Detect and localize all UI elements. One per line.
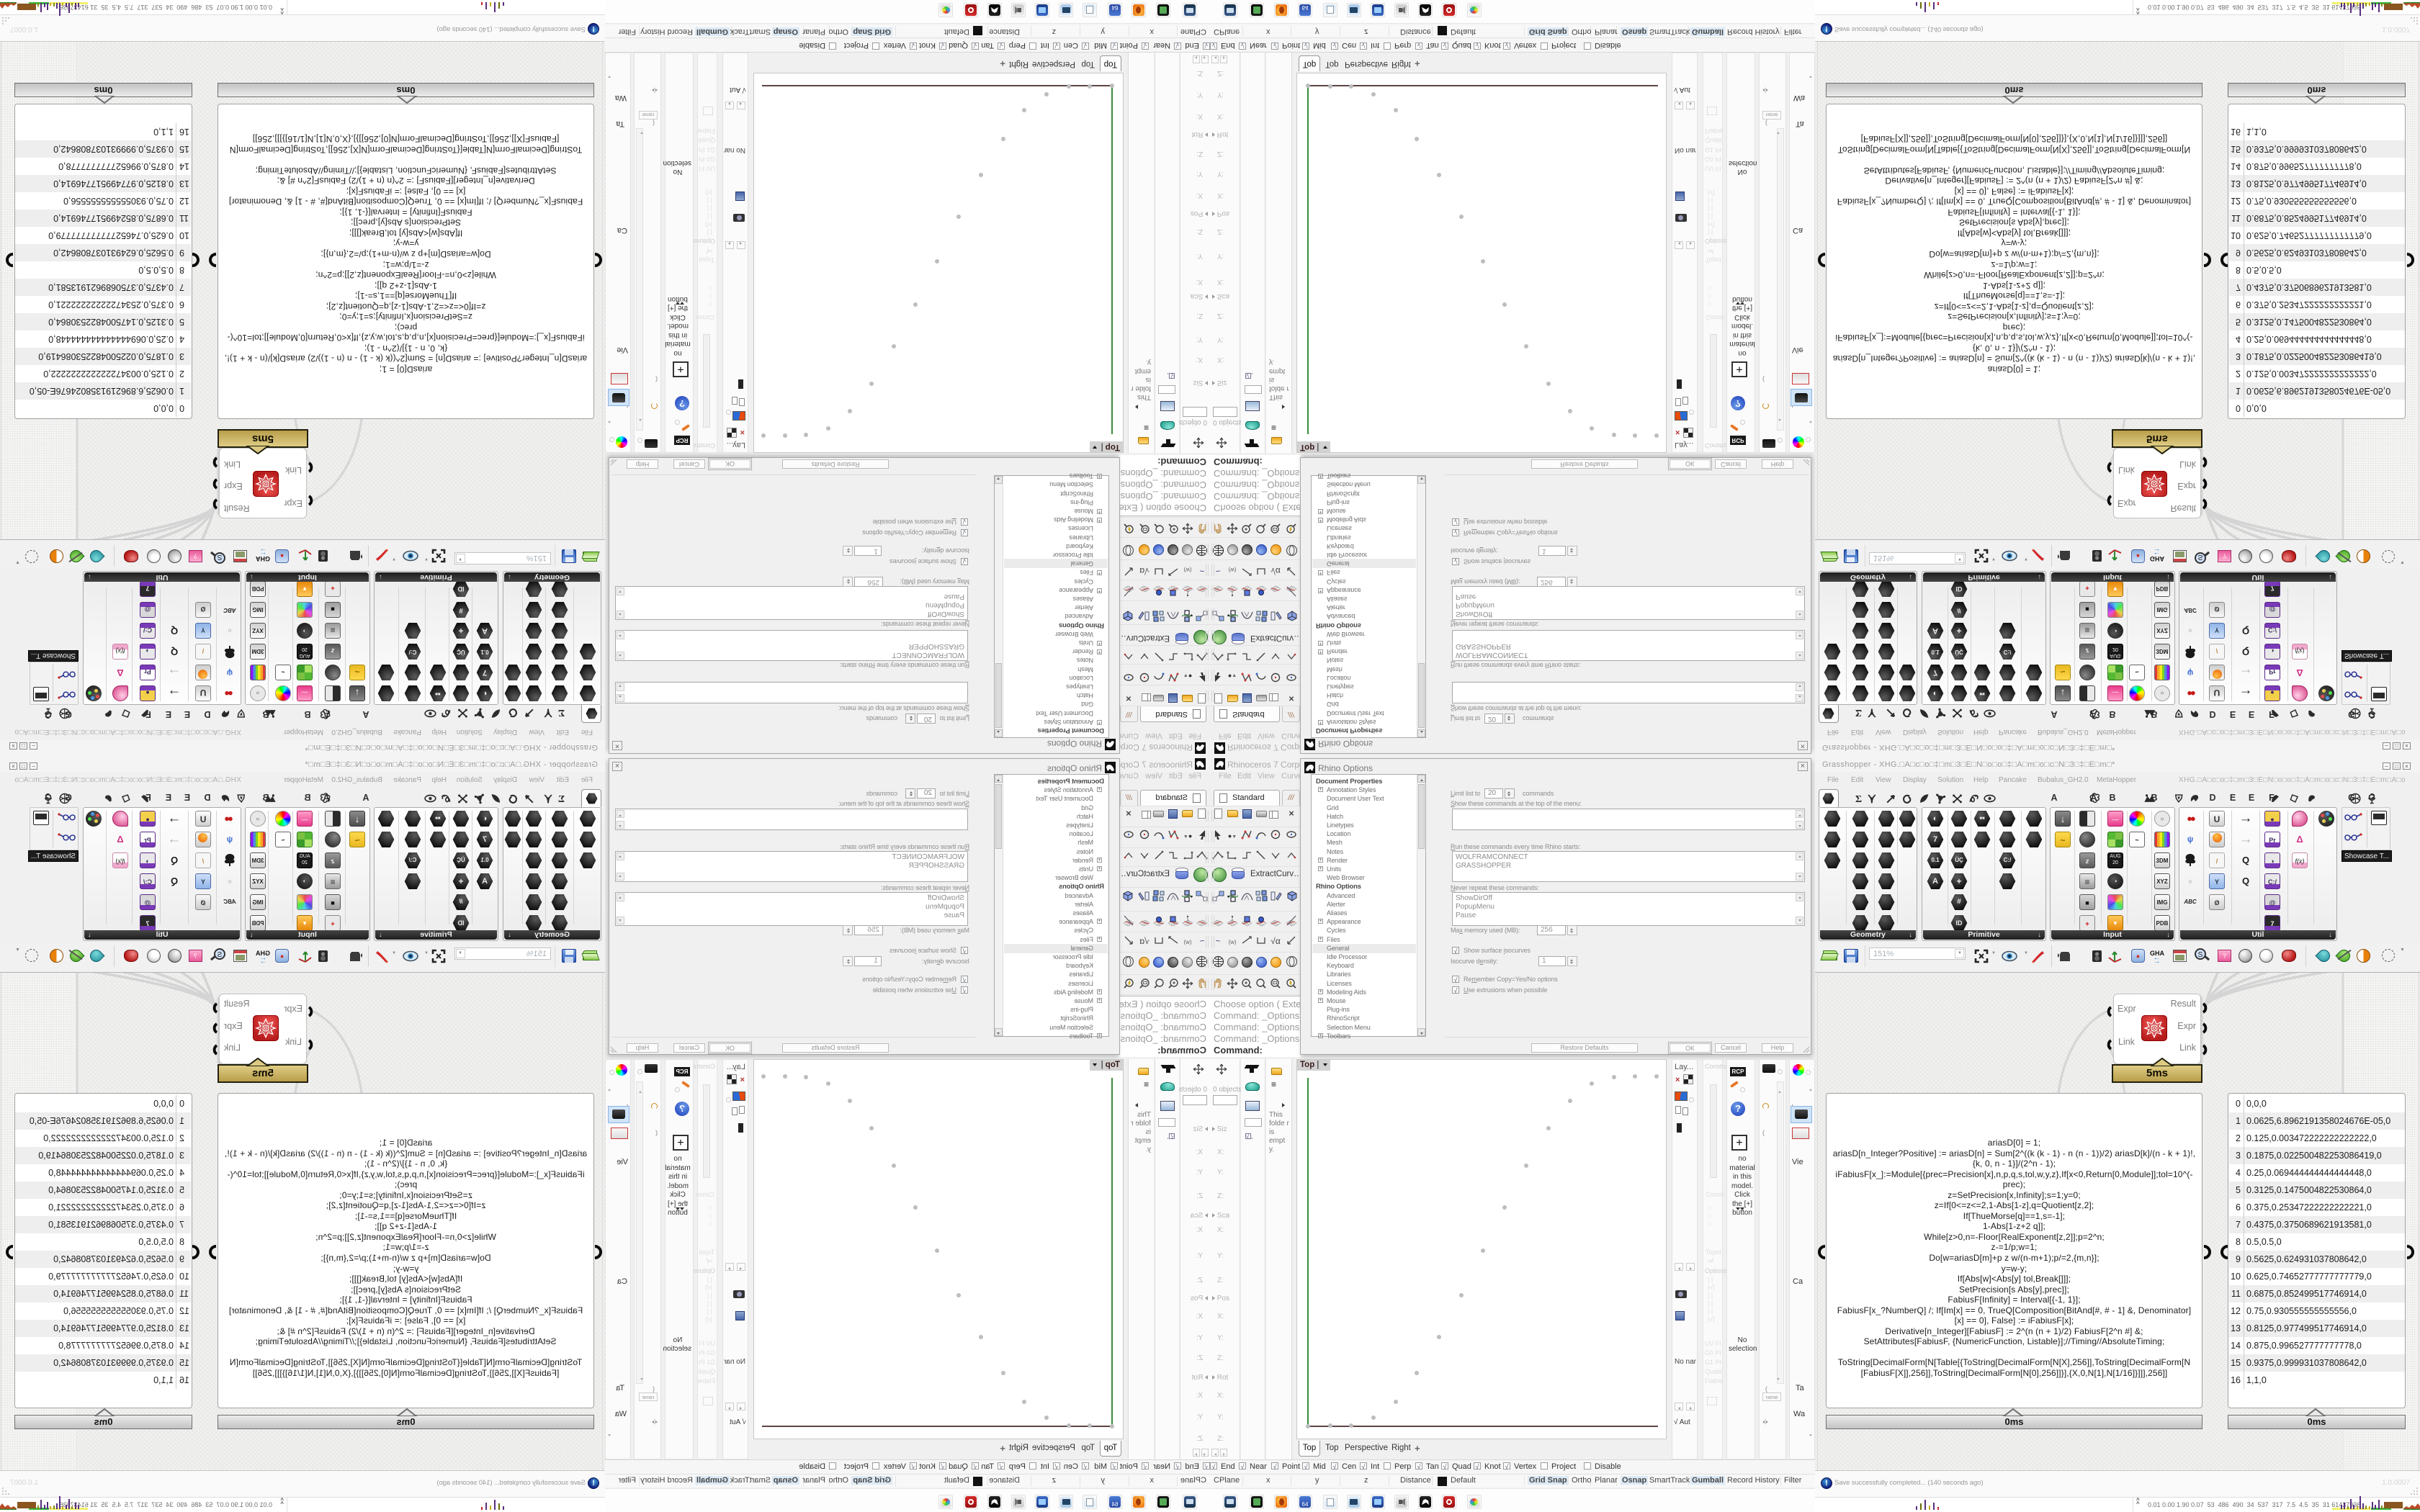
svg-text:Σ: Σ: [558, 794, 565, 805]
svg-text:Σ: Σ: [558, 707, 565, 718]
svg-text:Σ: Σ: [1855, 707, 1862, 718]
svg-text:Σ: Σ: [1855, 794, 1862, 805]
